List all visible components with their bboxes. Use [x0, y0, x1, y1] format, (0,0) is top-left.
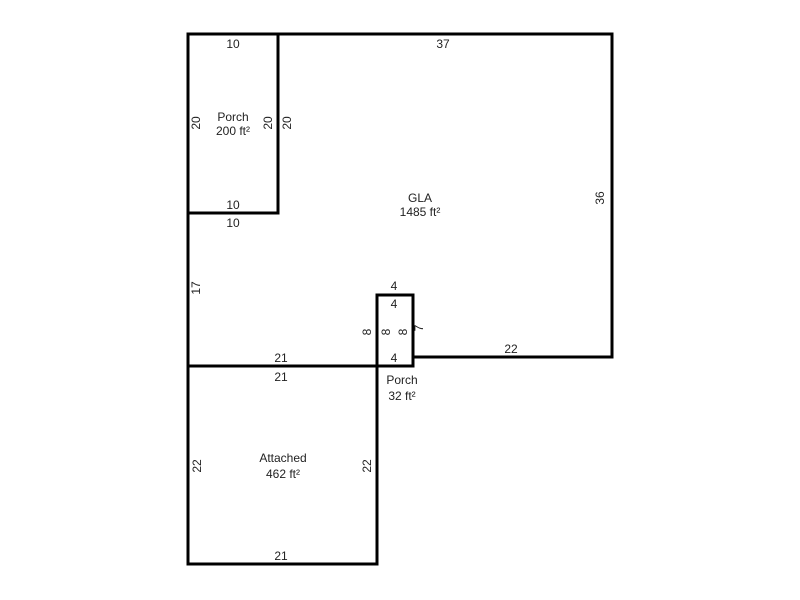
- attached-label: Attached: [259, 452, 306, 464]
- dim-small-porch-bottom: 4: [391, 352, 398, 364]
- dim-porch-top: 10: [226, 38, 239, 50]
- dim-attached-left: 22: [191, 459, 203, 472]
- dim-gla-top: 37: [436, 38, 449, 50]
- dim-porch-left: 20: [190, 116, 202, 129]
- dim-gla-left: 17: [190, 281, 202, 294]
- dim-gla-bottom-right: 22: [504, 343, 517, 355]
- dim-attached-right: 22: [361, 459, 373, 472]
- gla-label: GLA: [408, 192, 432, 204]
- floorplan-canvas: 10 20 Porch 200 ft² 20 20 10 10 37 GLA 1…: [0, 0, 800, 600]
- porch-top-area: 200 ft²: [216, 125, 250, 137]
- gla-area: 1485 ft²: [400, 206, 441, 218]
- dim-small-porch-top-inner: 4: [391, 298, 398, 310]
- dim-porch-bottom-inner: 10: [226, 199, 239, 211]
- small-porch-area: 32 ft²: [388, 390, 415, 402]
- dim-gla-right: 36: [594, 191, 606, 204]
- dim-small-porch-left-outer: 8: [361, 329, 373, 336]
- dim-small-porch-right-inner: 8: [397, 329, 409, 336]
- attached-area: 462 ft²: [266, 468, 300, 480]
- dim-porch-bottom-outer: 10: [226, 217, 239, 229]
- floorplan-walls: [0, 0, 800, 600]
- dim-porch-right-inner: 20: [262, 116, 274, 129]
- dim-attached-top: 21: [274, 371, 287, 383]
- porch-top-label: Porch: [217, 111, 248, 123]
- dim-porch-right-outer: 20: [281, 116, 293, 129]
- small-porch-label: Porch: [386, 374, 417, 386]
- gla-outline: [188, 34, 612, 366]
- dim-small-porch-top-outer: 4: [391, 280, 398, 292]
- attached-outline: [188, 366, 377, 564]
- dim-small-porch-right-outer: 7: [413, 325, 425, 332]
- dim-gla-bottom-left: 21: [274, 352, 287, 364]
- dim-small-porch-left-inner: 8: [380, 329, 392, 336]
- dim-attached-bottom: 21: [274, 550, 287, 562]
